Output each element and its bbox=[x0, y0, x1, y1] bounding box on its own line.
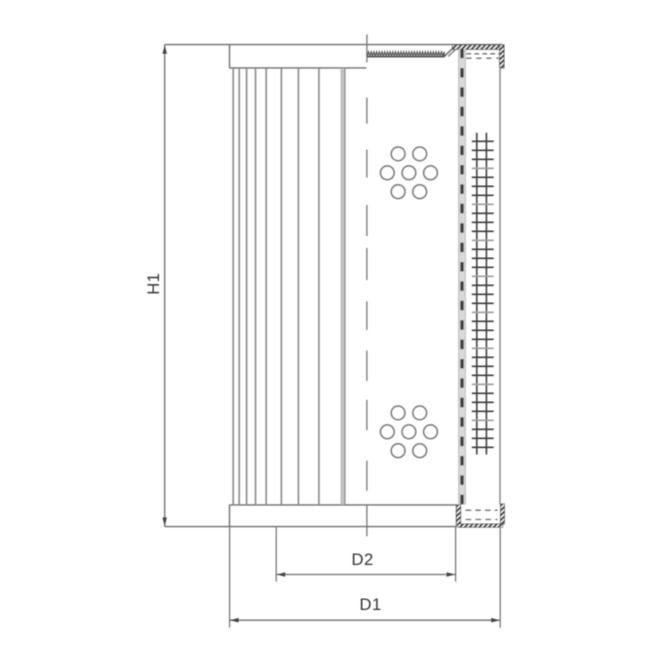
svg-text:H1: H1 bbox=[144, 273, 163, 295]
svg-text:D1: D1 bbox=[359, 595, 381, 614]
svg-text:D2: D2 bbox=[351, 550, 373, 569]
